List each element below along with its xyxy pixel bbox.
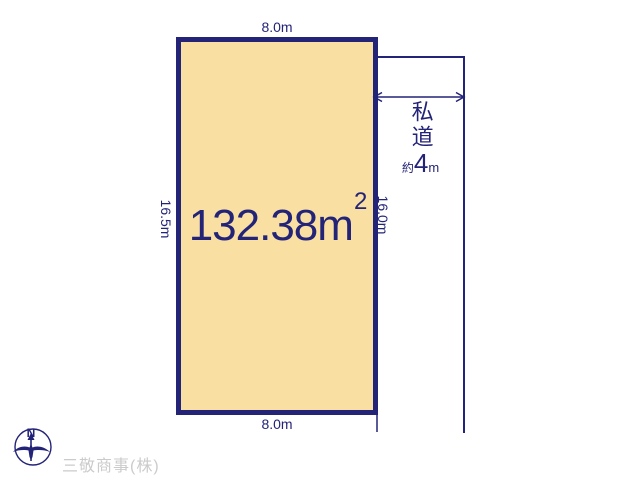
private-road-label-wrap: 私道 (377, 100, 464, 150)
area-value: 132.38 (189, 201, 318, 250)
area-superscript: 2 (354, 188, 366, 215)
compass-north-icon: N (12, 424, 56, 468)
company-watermark: 三敬商事(株) (62, 452, 160, 476)
dimension-bottom: 8.0m (176, 416, 378, 432)
dimension-left: 16.5m (158, 197, 174, 241)
road-boundary-top (377, 56, 464, 58)
dimension-top: 8.0m (176, 19, 378, 35)
road-boundary-left-extension (376, 415, 378, 432)
road-width-label: 約4m (377, 148, 464, 179)
dimension-right: 16.0m (375, 193, 391, 237)
land-plot-diagram: 132.38m2 8.0m 8.0m 16.5m 16.0m 私道 約4m N … (0, 0, 640, 480)
road-width-value: 4 (414, 148, 428, 178)
road-width-unit: m (428, 160, 439, 175)
road-width-approx: 約 (402, 161, 414, 175)
land-parcel: 132.38m2 (176, 37, 378, 415)
private-road-label: 私道 (408, 100, 432, 150)
area-unit: m (317, 201, 353, 250)
parcel-area-label: 132.38m2 (189, 204, 366, 248)
